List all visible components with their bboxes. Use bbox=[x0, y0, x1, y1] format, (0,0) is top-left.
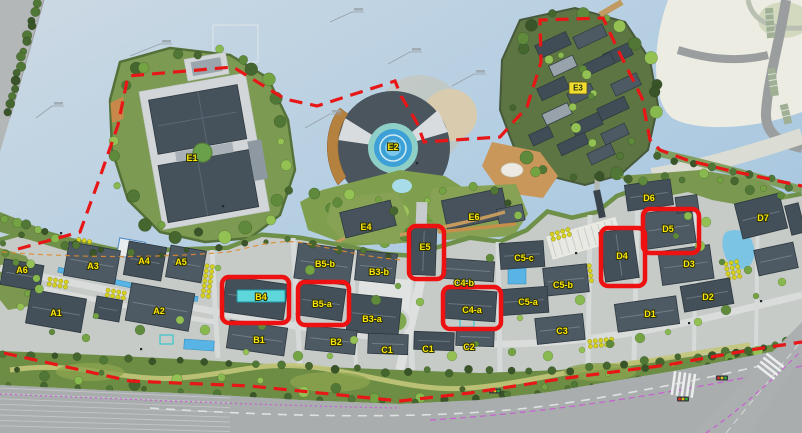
tree bbox=[82, 334, 90, 342]
tree bbox=[517, 32, 529, 44]
tree bbox=[98, 247, 104, 253]
tree bbox=[671, 158, 678, 165]
label-d2[interactable]: D2 bbox=[702, 292, 714, 302]
town-building bbox=[414, 331, 455, 350]
tree bbox=[661, 172, 669, 180]
tree bbox=[624, 175, 633, 184]
tree bbox=[531, 167, 541, 177]
tree bbox=[194, 228, 203, 237]
tree bbox=[327, 353, 333, 359]
tree bbox=[649, 86, 660, 97]
tree bbox=[510, 105, 516, 111]
tree bbox=[447, 351, 457, 361]
tree bbox=[543, 351, 553, 361]
tree bbox=[369, 393, 379, 403]
tree bbox=[285, 187, 293, 195]
tree bbox=[375, 197, 381, 203]
tree bbox=[13, 218, 23, 228]
tree bbox=[350, 336, 358, 344]
tree bbox=[542, 384, 548, 390]
tree bbox=[333, 198, 343, 208]
label-a5[interactable]: A5 bbox=[175, 257, 187, 267]
tree bbox=[218, 374, 226, 382]
tree bbox=[588, 139, 596, 147]
tree bbox=[439, 187, 446, 194]
tree bbox=[218, 231, 231, 244]
traffic-light-icon bbox=[677, 397, 689, 402]
tree bbox=[708, 163, 716, 171]
tree bbox=[178, 389, 183, 394]
tree bbox=[517, 315, 523, 321]
label-c5-c[interactable]: C5-c bbox=[514, 253, 534, 263]
tree bbox=[744, 266, 752, 274]
tree bbox=[216, 244, 223, 251]
tree bbox=[73, 353, 81, 361]
tree bbox=[141, 386, 146, 391]
tree bbox=[13, 69, 20, 76]
tree bbox=[194, 51, 202, 59]
tree bbox=[731, 177, 739, 185]
tree bbox=[491, 187, 499, 195]
tree bbox=[744, 347, 752, 355]
tree bbox=[566, 368, 574, 376]
tree bbox=[28, 22, 36, 30]
tree bbox=[570, 174, 577, 181]
tree bbox=[344, 189, 355, 200]
tree bbox=[548, 367, 556, 375]
tree bbox=[645, 51, 658, 64]
tree bbox=[381, 369, 389, 377]
label-c4-a[interactable]: C4-a bbox=[462, 305, 483, 315]
tree bbox=[395, 283, 401, 289]
tree bbox=[582, 70, 591, 79]
tree bbox=[239, 55, 248, 64]
tree bbox=[14, 367, 20, 373]
tree bbox=[23, 37, 32, 46]
tree bbox=[309, 188, 320, 199]
label-a1[interactable]: A1 bbox=[50, 308, 62, 318]
tree bbox=[594, 171, 604, 181]
tree bbox=[263, 73, 276, 86]
tree bbox=[41, 228, 48, 235]
label-b1[interactable]: B1 bbox=[253, 335, 265, 345]
label-d1[interactable]: D1 bbox=[644, 309, 656, 319]
tree bbox=[579, 347, 585, 353]
tree bbox=[31, 7, 41, 17]
label-d7[interactable]: D7 bbox=[757, 213, 769, 223]
label-c5-a[interactable]: C5-a bbox=[518, 297, 539, 307]
tree bbox=[169, 231, 182, 244]
tree bbox=[508, 367, 515, 374]
tree bbox=[389, 207, 398, 216]
tree bbox=[278, 361, 286, 369]
tree bbox=[778, 278, 786, 286]
label-c4-b[interactable]: C4-b bbox=[454, 278, 475, 288]
tree bbox=[40, 371, 50, 381]
tree bbox=[504, 391, 511, 398]
tree bbox=[642, 365, 649, 372]
tree bbox=[588, 93, 594, 99]
tree bbox=[33, 275, 40, 282]
tree bbox=[266, 215, 276, 225]
label-d5[interactable]: D5 bbox=[662, 224, 674, 234]
tree bbox=[684, 212, 692, 220]
tree bbox=[1, 215, 9, 223]
tree bbox=[354, 365, 360, 371]
tree bbox=[21, 220, 31, 230]
tree bbox=[127, 190, 140, 203]
label-b2[interactable]: B2 bbox=[330, 337, 342, 347]
master-plan-screenshot: E1E2E3E4E5E6A6A3A4A5A1A2B4B5-bB5-aB3-bB3… bbox=[0, 0, 802, 433]
tree bbox=[777, 192, 784, 199]
tree bbox=[525, 19, 537, 31]
label-d6[interactable]: D6 bbox=[643, 193, 655, 203]
tree bbox=[628, 138, 635, 145]
tree bbox=[0, 241, 6, 247]
tree bbox=[665, 329, 671, 335]
label-c2[interactable]: C2 bbox=[463, 342, 475, 352]
tree bbox=[464, 365, 472, 373]
tree bbox=[184, 248, 189, 253]
tree bbox=[635, 333, 645, 343]
label-c1[interactable]: C1 bbox=[422, 344, 434, 354]
tree bbox=[257, 377, 263, 383]
tree bbox=[278, 138, 285, 145]
tree bbox=[158, 221, 165, 228]
tree bbox=[673, 233, 679, 239]
tree bbox=[127, 249, 134, 256]
tree bbox=[508, 348, 516, 356]
tree bbox=[52, 353, 58, 359]
tree bbox=[33, 0, 42, 8]
tree bbox=[701, 217, 711, 227]
tree bbox=[49, 329, 55, 335]
tree bbox=[558, 52, 564, 58]
tree bbox=[569, 103, 577, 111]
label-b3-a[interactable]: B3-a bbox=[362, 314, 383, 324]
tree bbox=[520, 151, 533, 164]
tree bbox=[149, 358, 156, 365]
tree bbox=[226, 360, 232, 366]
tree bbox=[274, 115, 286, 127]
label-e3[interactable]: E3 bbox=[573, 84, 583, 93]
tree bbox=[124, 355, 132, 363]
tree bbox=[35, 226, 42, 233]
tree bbox=[730, 168, 737, 175]
tree bbox=[281, 160, 292, 171]
tree bbox=[416, 298, 424, 306]
tree bbox=[445, 369, 453, 377]
tree bbox=[650, 106, 663, 119]
tree bbox=[469, 182, 477, 190]
label-d3[interactable]: D3 bbox=[683, 259, 695, 269]
tree bbox=[640, 356, 649, 365]
tree bbox=[719, 259, 725, 265]
tree bbox=[360, 247, 366, 253]
tree bbox=[18, 232, 24, 238]
tree bbox=[753, 293, 759, 299]
tree bbox=[606, 340, 614, 348]
tree bbox=[293, 351, 303, 361]
tree bbox=[603, 362, 611, 370]
label-c5-b[interactable]: C5-b bbox=[553, 280, 574, 290]
tree bbox=[331, 383, 341, 393]
tree bbox=[11, 76, 20, 85]
tree bbox=[571, 123, 581, 133]
tree bbox=[51, 234, 60, 243]
tree bbox=[138, 62, 149, 73]
tree bbox=[616, 152, 624, 160]
tree bbox=[699, 169, 709, 179]
tree bbox=[252, 361, 259, 368]
label-b4[interactable]: B4 bbox=[255, 292, 267, 302]
tree bbox=[200, 325, 210, 335]
tree bbox=[35, 285, 44, 294]
tree bbox=[545, 55, 554, 64]
tree bbox=[99, 356, 107, 364]
tree bbox=[201, 358, 208, 365]
tree bbox=[486, 366, 493, 373]
label-a2[interactable]: A2 bbox=[153, 306, 165, 316]
tree bbox=[721, 305, 731, 315]
tree bbox=[331, 365, 339, 373]
tree bbox=[675, 354, 681, 360]
tree bbox=[305, 265, 315, 275]
tree bbox=[93, 313, 99, 319]
tree bbox=[585, 363, 593, 371]
tree bbox=[694, 318, 702, 326]
tree bbox=[505, 200, 512, 207]
label-e2[interactable]: E2 bbox=[387, 142, 398, 152]
traffic-light-icon bbox=[716, 376, 728, 381]
label-c1[interactable]: C1 bbox=[381, 345, 393, 355]
tree bbox=[159, 253, 165, 259]
tree bbox=[745, 185, 755, 195]
tree bbox=[239, 221, 252, 234]
tree bbox=[74, 376, 82, 384]
tree bbox=[138, 218, 151, 231]
tree bbox=[90, 249, 97, 256]
tree bbox=[486, 254, 494, 262]
tree bbox=[177, 357, 183, 363]
tree bbox=[571, 381, 578, 388]
tree bbox=[24, 290, 30, 296]
tree bbox=[653, 152, 661, 160]
label-a6[interactable]: A6 bbox=[16, 265, 28, 275]
tree bbox=[271, 194, 283, 206]
label-d4[interactable]: D4 bbox=[616, 251, 628, 261]
tree bbox=[548, 9, 556, 17]
tree bbox=[11, 85, 19, 93]
tree bbox=[639, 177, 648, 186]
tree bbox=[215, 265, 221, 271]
label-b3-b[interactable]: B3-b bbox=[369, 267, 390, 277]
tree bbox=[242, 240, 248, 246]
tree bbox=[173, 49, 183, 59]
tree bbox=[610, 167, 623, 180]
tree bbox=[216, 45, 224, 53]
tree bbox=[424, 366, 430, 372]
tree bbox=[16, 52, 25, 61]
tree bbox=[109, 151, 120, 162]
tree bbox=[575, 295, 585, 305]
tree bbox=[243, 349, 249, 355]
master-plan-canvas: E1E2E3E4E5E6A6A3A4A5A1A2B4B5-bB5-aB3-bB3… bbox=[0, 0, 802, 433]
label-a4[interactable]: A4 bbox=[138, 256, 150, 266]
label-e4[interactable]: E4 bbox=[360, 222, 371, 232]
label-e1[interactable]: E1 bbox=[186, 153, 197, 163]
tree bbox=[17, 303, 24, 310]
tree bbox=[760, 185, 766, 191]
tree bbox=[72, 241, 80, 249]
label-e6[interactable]: E6 bbox=[468, 212, 479, 222]
tree bbox=[404, 368, 412, 376]
label-b5-b[interactable]: B5-b bbox=[315, 259, 336, 269]
tree bbox=[6, 99, 15, 108]
tree bbox=[785, 184, 793, 192]
tree bbox=[620, 361, 628, 369]
tree bbox=[2, 250, 9, 257]
tree bbox=[526, 368, 533, 375]
label-a3[interactable]: A3 bbox=[87, 261, 99, 271]
tree bbox=[99, 370, 104, 375]
tree bbox=[628, 37, 641, 50]
tree bbox=[460, 386, 466, 392]
tree bbox=[514, 211, 522, 219]
tree bbox=[613, 20, 625, 32]
tree bbox=[371, 295, 381, 305]
tree bbox=[176, 316, 184, 324]
label-e5[interactable]: E5 bbox=[419, 242, 430, 252]
tree bbox=[305, 362, 313, 370]
tree bbox=[679, 177, 685, 183]
label-b5-a[interactable]: B5-a bbox=[312, 299, 333, 309]
tree bbox=[4, 108, 12, 116]
tree bbox=[61, 241, 69, 249]
tree bbox=[114, 182, 121, 189]
label-c3[interactable]: C3 bbox=[556, 326, 568, 336]
tree bbox=[135, 325, 145, 335]
tree bbox=[717, 177, 723, 183]
tree bbox=[518, 43, 529, 54]
